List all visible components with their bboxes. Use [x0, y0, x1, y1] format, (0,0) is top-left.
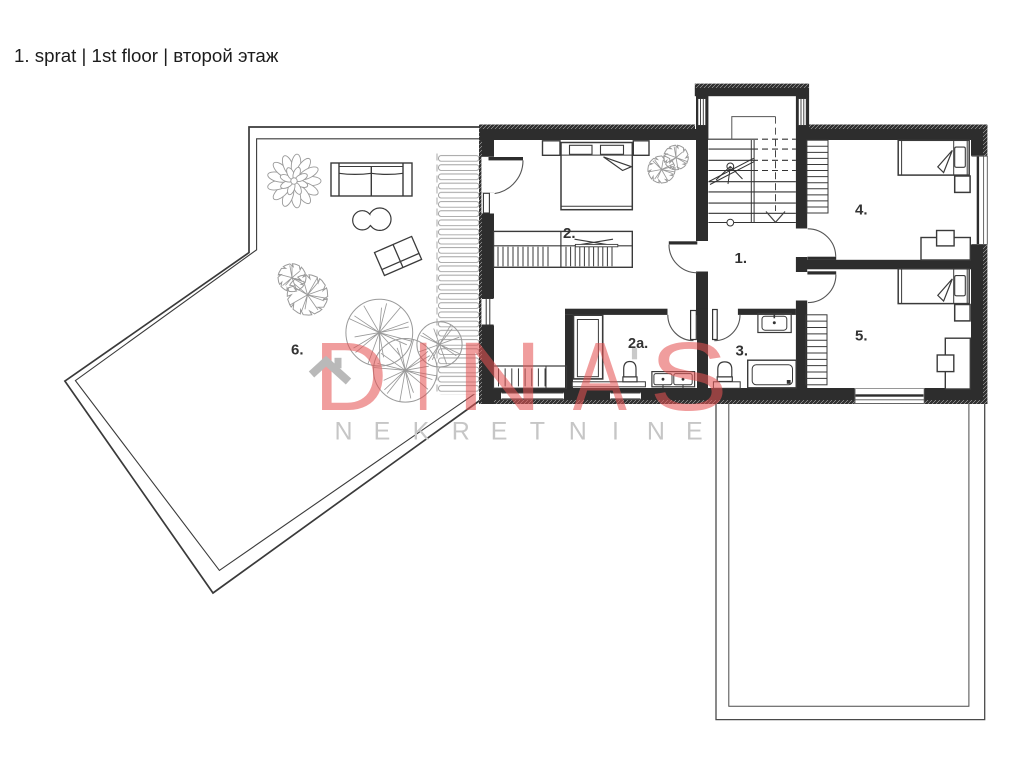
svg-text:4.: 4. [855, 202, 868, 219]
svg-text:5.: 5. [855, 328, 868, 345]
svg-text:S: S [649, 322, 728, 431]
svg-text:I: I [414, 322, 433, 431]
svg-text:2.: 2. [563, 225, 576, 242]
svg-text:1.: 1. [735, 250, 748, 267]
svg-text:2a.: 2a. [628, 336, 648, 352]
svg-text:N: N [456, 322, 543, 431]
svg-text:D: D [314, 322, 388, 431]
svg-text:3.: 3. [736, 343, 749, 360]
svg-text:6.: 6. [291, 342, 304, 359]
svg-text:A: A [573, 322, 627, 431]
svg-text:1. sprat | 1st floor | второй: 1. sprat | 1st floor | второй этаж [14, 45, 279, 66]
